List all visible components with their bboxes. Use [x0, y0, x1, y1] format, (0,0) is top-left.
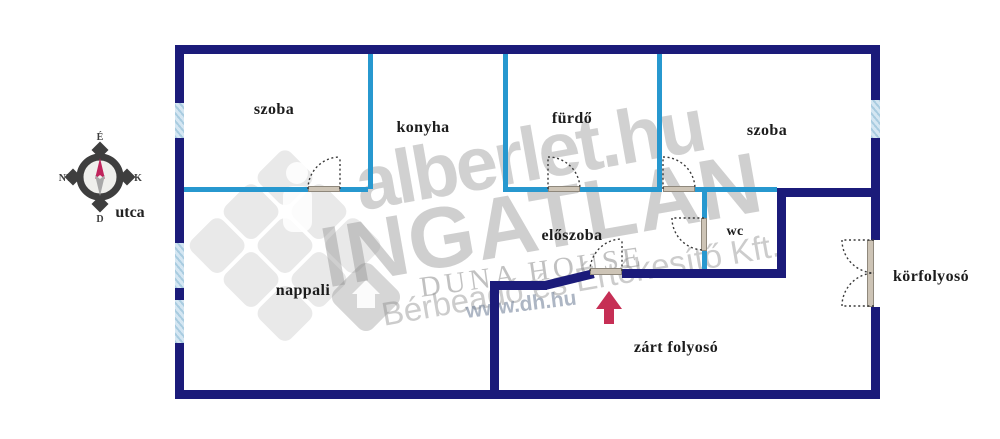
- room-label-szoba-left: szoba: [254, 101, 294, 119]
- compass-label-west: NY: [59, 173, 74, 184]
- room-label-korfolyoso: körfolyosó: [893, 268, 969, 286]
- labels: szoba konyha fürdő szoba előszoba wc nap…: [0, 0, 1000, 439]
- room-label-eloszoba: előszoba: [542, 227, 603, 245]
- room-label-furdo: fürdő: [552, 110, 592, 128]
- room-label-konyha: konyha: [396, 119, 449, 137]
- floor-plan-image: alberlet.hu INGATLAN Bérbeadó és Értékes…: [0, 0, 1000, 439]
- compass-label-south: D: [96, 214, 103, 225]
- compass-label-north: É: [97, 131, 104, 143]
- room-label-nappali: nappali: [276, 282, 330, 300]
- room-label-zart-folyoso: zárt folyosó: [634, 339, 718, 357]
- room-label-wc: wc: [726, 224, 743, 240]
- compass-icon: É K D NY: [58, 128, 146, 226]
- room-label-szoba-right: szoba: [747, 122, 787, 140]
- compass-label-east: K: [134, 173, 142, 184]
